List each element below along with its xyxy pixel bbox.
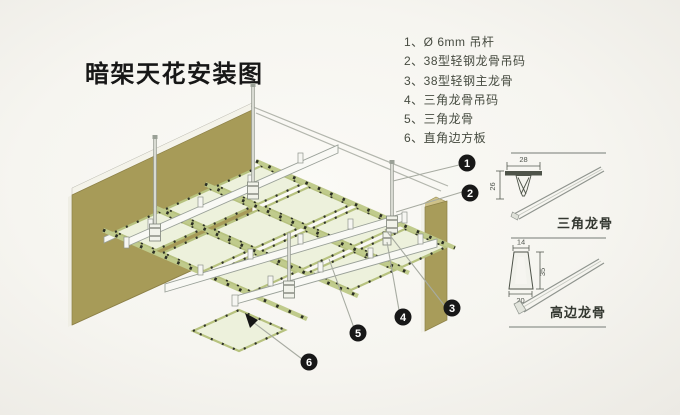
right-wall-edge (421, 203, 425, 333)
keel-clip (298, 234, 303, 244)
svg-text:1: 1 (464, 158, 470, 170)
keel-end (232, 295, 238, 306)
dim-height: 35 (538, 268, 547, 276)
detached-panel (193, 310, 285, 351)
drawing-svg: 1 2 3 4 5 6 (0, 0, 680, 415)
dim-top: 14 (517, 238, 525, 247)
keel-end (124, 237, 129, 248)
balloon-3: 3 (444, 300, 461, 317)
ceiling-installation-diagram: 暗架天花安装图 1、Ø 6mm 吊杆 2、38型轻钢龙骨吊码 3、38型轻钢主龙… (0, 0, 680, 415)
balloon-5: 5 (350, 325, 367, 342)
keel-clip (198, 197, 203, 207)
high-edge-keel-label: 高边龙骨 (550, 305, 606, 320)
hanger-rod (252, 85, 255, 184)
hanger-bracket (150, 224, 161, 241)
svg-text:3: 3 (449, 303, 455, 315)
hanger-rod (154, 137, 157, 228)
keel-end (402, 212, 407, 223)
balloon-6: 6 (301, 354, 318, 371)
rod-cap (251, 83, 256, 87)
keel-clip (248, 249, 253, 259)
keel-clip (198, 265, 203, 275)
triangle-keel-detail: 28 26 三角龙骨 (488, 155, 613, 231)
hanger-bracket (387, 216, 398, 233)
keel-clip (318, 262, 323, 272)
keel-clip (418, 234, 423, 244)
hanger-rod (391, 162, 394, 218)
keel-clip (348, 219, 353, 229)
profile-flange (505, 171, 542, 176)
balloon-2: 2 (462, 185, 479, 202)
wall-left-edge (68, 195, 72, 327)
right-wall (421, 197, 447, 333)
triangle-keel-label: 三角龙骨 (557, 216, 613, 231)
keel-clip (368, 248, 373, 258)
svg-text:2: 2 (467, 188, 473, 200)
hanger-bracket (248, 182, 259, 199)
high-edge-keel-detail: 14 35 20 高边龙骨 (509, 238, 606, 321)
right-wall-face (425, 201, 447, 331)
hanger-rod (288, 233, 291, 283)
hanger-bracket (284, 281, 295, 298)
dim-width: 28 (519, 155, 527, 164)
rod-cap (153, 135, 158, 139)
balloon-4: 4 (395, 309, 412, 326)
balloon-1: 1 (459, 155, 476, 172)
keel-clip (298, 153, 303, 163)
dim-height: 26 (488, 182, 497, 190)
rod-cap (390, 160, 395, 164)
svg-text:5: 5 (355, 328, 361, 340)
bar-end-cap (511, 212, 519, 220)
keel-clip (268, 276, 273, 286)
svg-text:6: 6 (306, 357, 312, 369)
svg-text:4: 4 (400, 312, 407, 324)
